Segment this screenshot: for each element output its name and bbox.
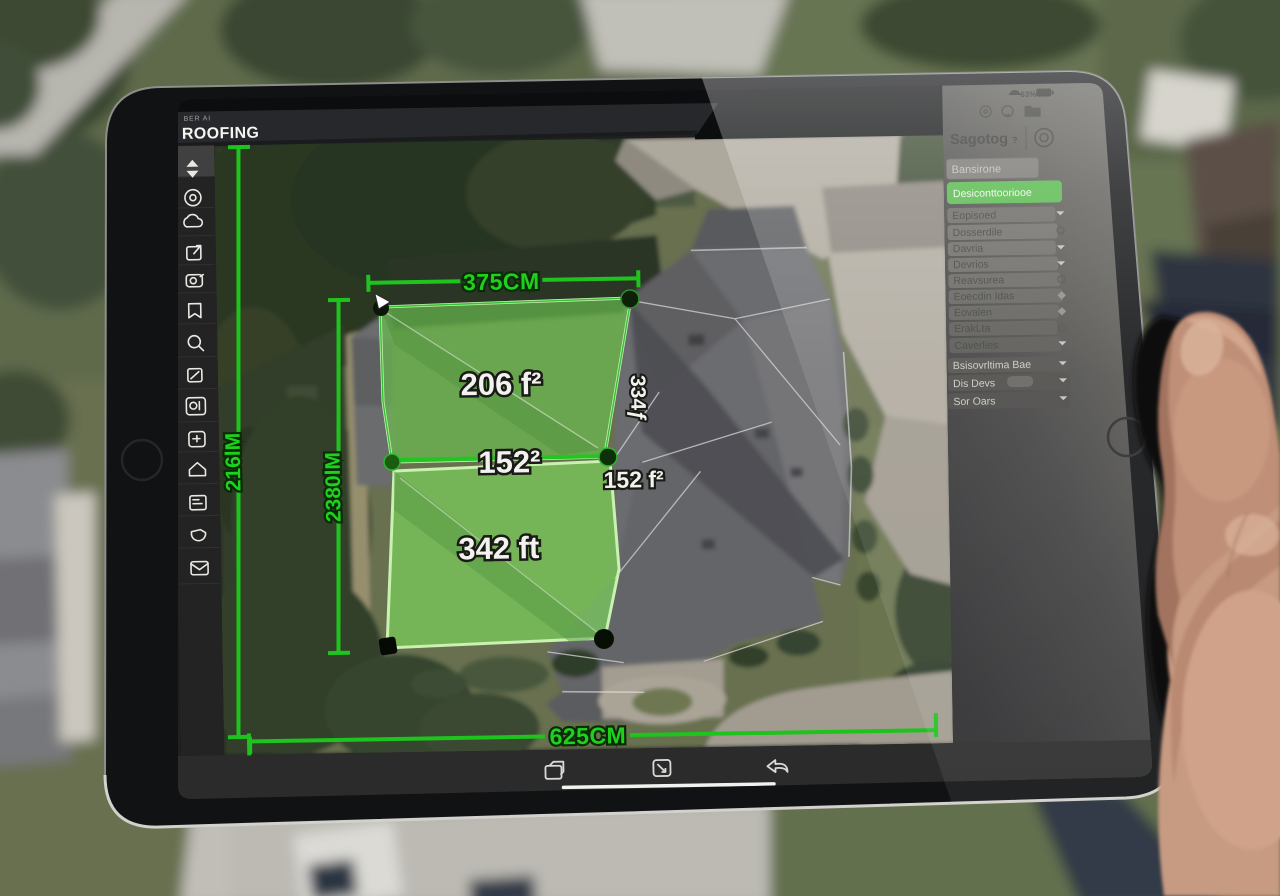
- svg-text:625CM: 625CM: [549, 722, 626, 749]
- svg-text:BER AI: BER AI: [184, 115, 211, 122]
- svg-text:ROOFING: ROOFING: [182, 125, 260, 143]
- svg-text:152 f²: 152 f²: [603, 466, 664, 493]
- svg-text:2380lM: 2380lM: [321, 452, 345, 522]
- svg-text:152²: 152²: [478, 444, 541, 480]
- svg-text:206 f²: 206 f²: [460, 366, 542, 402]
- svg-text:375CM: 375CM: [463, 268, 540, 295]
- svg-text:334ƒ: 334ƒ: [626, 375, 650, 422]
- svg-text:216lM: 216lM: [222, 433, 246, 492]
- svg-text:342 ft: 342 ft: [458, 530, 540, 566]
